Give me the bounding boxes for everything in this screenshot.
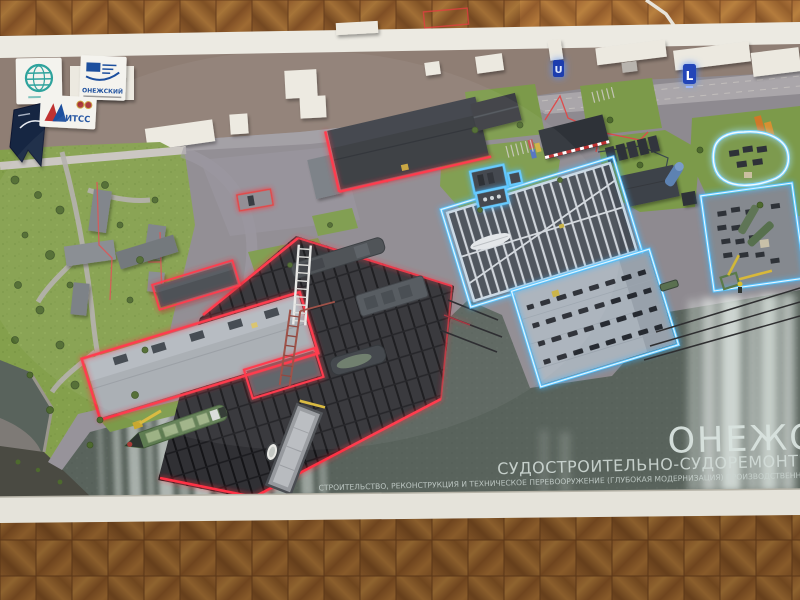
- worker-figure: [738, 282, 743, 294]
- storage-yard-blue: [701, 183, 800, 291]
- crate: [744, 172, 752, 178]
- pond-blue: [713, 132, 788, 186]
- photograph-of-shipyard-model: U L ОНЕЖСКИ СУДОСТРОИТЕЛЬНО-СУДОРЕМОНТНЫ…: [0, 0, 800, 600]
- hut: [681, 191, 697, 206]
- lit-sign-l-glyph: L: [686, 69, 694, 83]
- photo-highlight: [0, 50, 620, 450]
- onezhsky-ship-icon: [86, 62, 100, 71]
- lit-sign-l-bar: [686, 86, 693, 88]
- crate: [759, 239, 769, 248]
- lit-sign-u: U: [553, 60, 564, 77]
- lit-sign-u-glyph: U: [554, 65, 562, 76]
